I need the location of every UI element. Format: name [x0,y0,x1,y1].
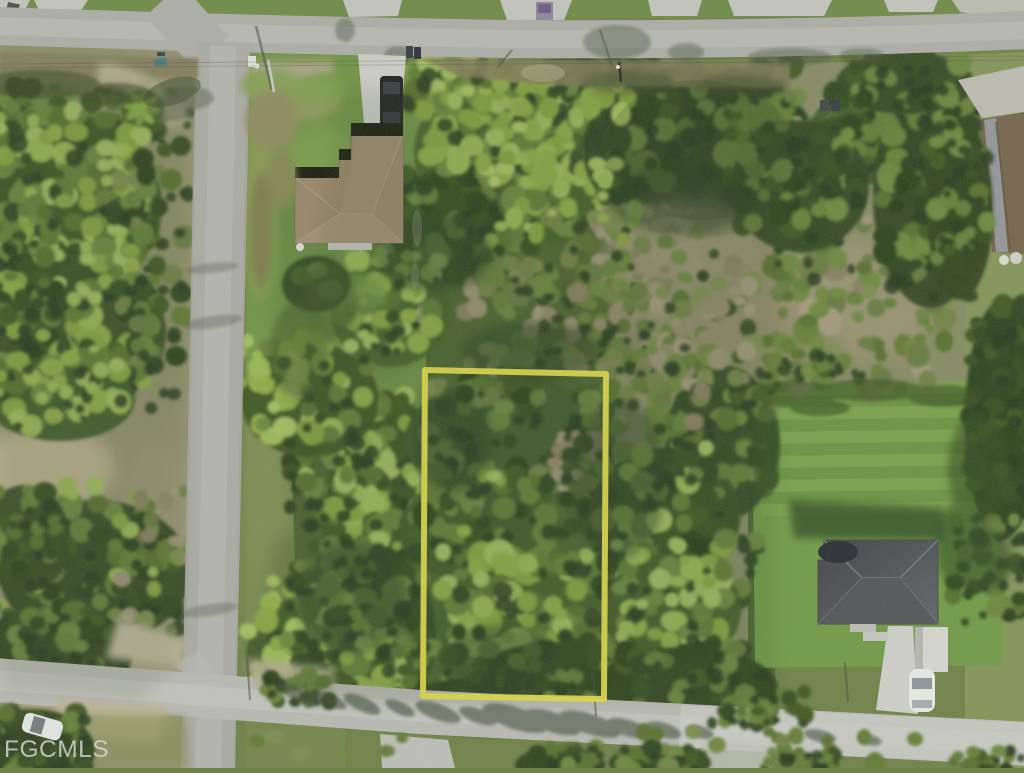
svg-text:FGCMLS: FGCMLS [4,736,109,763]
